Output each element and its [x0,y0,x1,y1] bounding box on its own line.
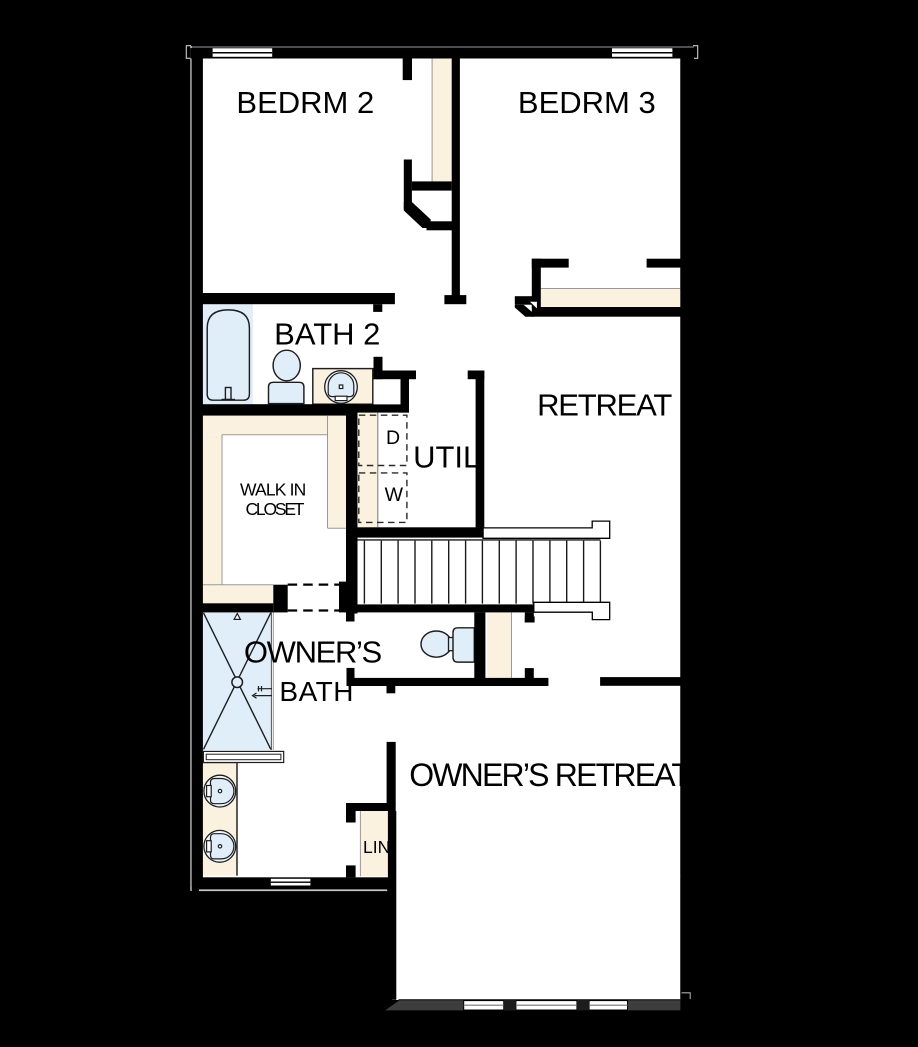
svg-text:BATH 2: BATH 2 [274,317,380,352]
svg-text:CLOSET: CLOSET [245,499,304,519]
svg-text:RETREAT: RETREAT [537,388,672,423]
svg-text:BEDRM 2: BEDRM 2 [236,85,374,120]
svg-text:BEDRM 3: BEDRM 3 [518,85,656,120]
svg-text:WALK IN: WALK IN [240,479,306,499]
svg-text:W: W [385,484,404,506]
svg-text:LIN: LIN [363,837,390,857]
svg-text:D: D [386,427,400,449]
svg-text:UTIL: UTIL [413,439,480,474]
svg-text:BATH: BATH [279,676,354,707]
svg-text:OWNER’S: OWNER’S [244,634,382,669]
svg-text:OWNER’S RETREAT: OWNER’S RETREAT [409,757,690,793]
